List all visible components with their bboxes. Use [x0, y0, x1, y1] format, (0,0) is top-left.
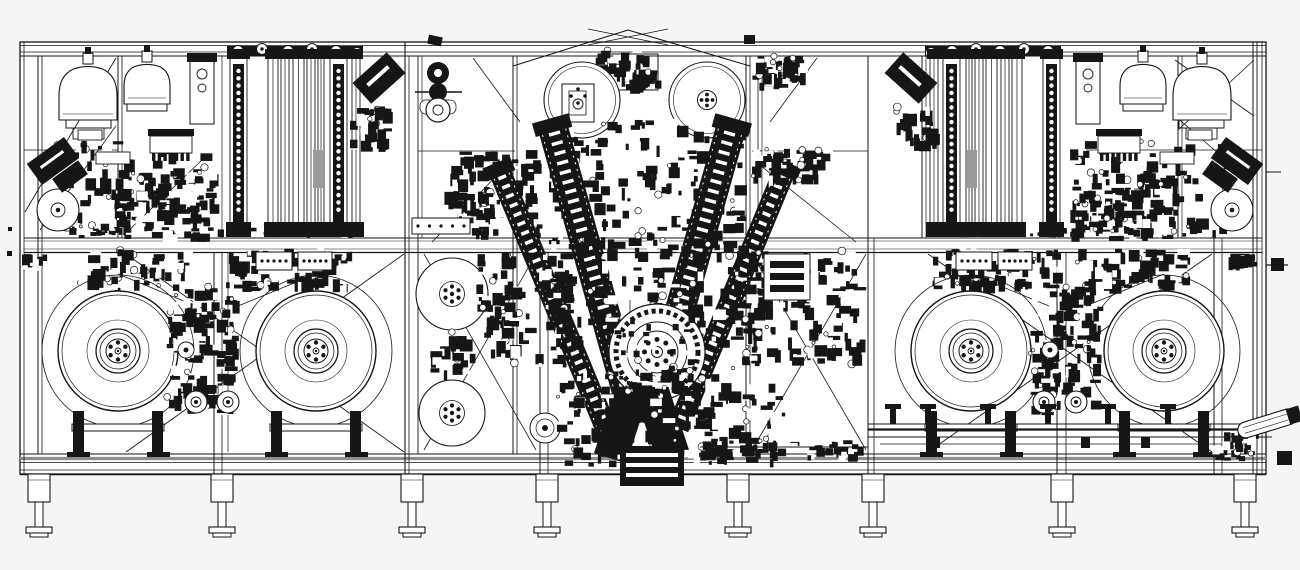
machine-drawing-page	[0, 0, 1300, 570]
machine-elevation-drawing	[0, 0, 1300, 570]
